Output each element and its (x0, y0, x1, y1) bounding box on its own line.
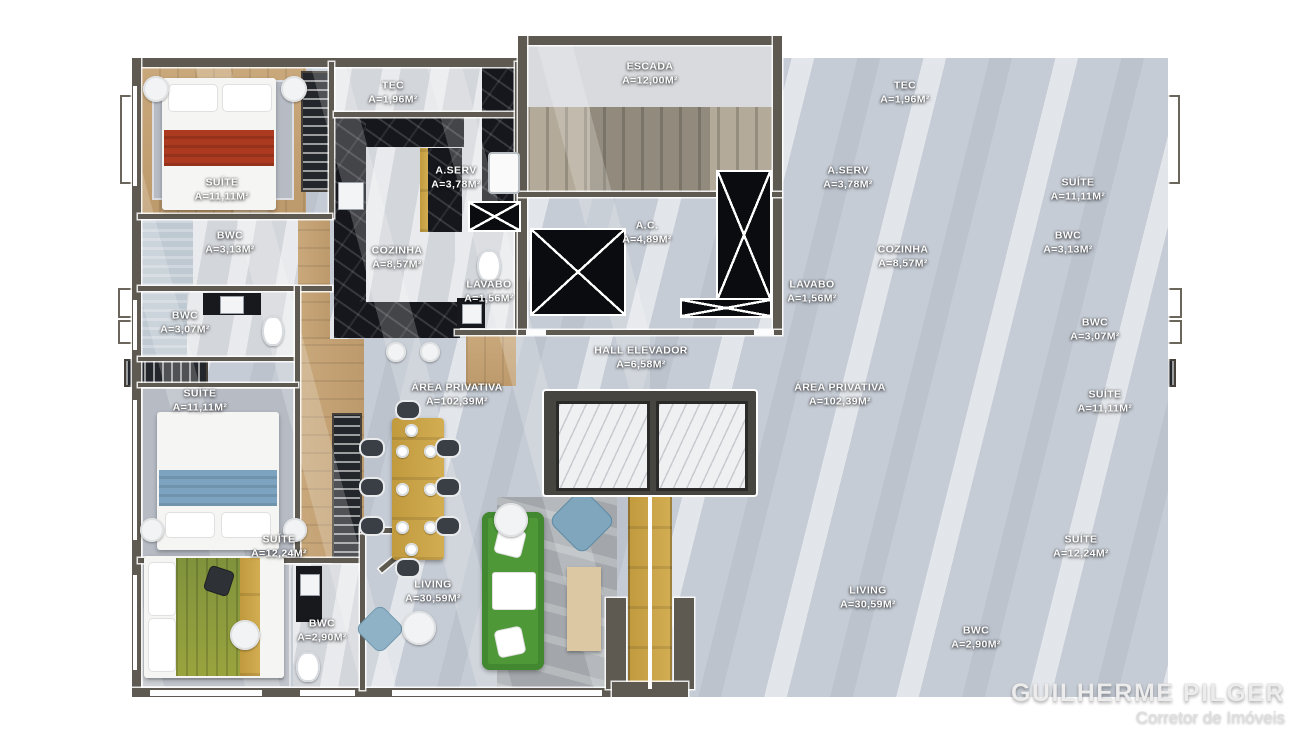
room-label-suite-bottom-right: SUÍTEA=12,24M² (1053, 533, 1109, 560)
room-label-suite-mid-left: SUÍTEA=11,11M² (173, 387, 228, 414)
stairs-shadow (590, 107, 710, 193)
bed-suite-mid (157, 412, 279, 550)
wall (329, 62, 334, 218)
window (133, 300, 137, 350)
floor-plan: SUÍTEA=11,11M² TECA=1,96M² A.SERVA=3,78M… (0, 0, 1300, 731)
window (133, 400, 137, 540)
dining-chair (437, 518, 459, 534)
room-label-cozinha-left: COZINHAA=8,57M² (372, 244, 423, 271)
plate (424, 445, 437, 458)
shaft-x-icon (680, 298, 772, 318)
window (392, 690, 602, 696)
bed-suite-bottom (144, 556, 284, 678)
wall (334, 112, 520, 117)
hall-corridor-wood (298, 215, 330, 339)
room-label-aserv-left: A.SERVA=3,78M² (431, 164, 481, 191)
elevator-right-cab (656, 401, 748, 491)
wardrobe (332, 413, 362, 564)
room-label-bwc-mid-left: BWCA=3,07M² (160, 309, 210, 336)
room-label-suite-bottom-left: SUÍTEA=12,24M² (251, 533, 307, 560)
dining-chair (437, 479, 459, 495)
window (133, 86, 137, 186)
room-label-bwc-bottom-right: BWCA=2,90M² (951, 624, 1001, 651)
room-label-cozinha-right: COZINHAA=8,57M² (878, 243, 929, 270)
door-opening (526, 330, 546, 335)
side-table (494, 503, 528, 537)
dining-chair (361, 518, 383, 534)
room-label-hall-elevador: HALL ELEVADORA=6,58M² (594, 344, 687, 371)
shaft-x-icon (716, 170, 772, 300)
watermark: GUILHERME PILGER Corretor de Imóveis (1011, 679, 1285, 728)
nightstand (140, 518, 164, 542)
watermark-name: GUILHERME PILGER (1011, 679, 1285, 708)
plate (424, 521, 437, 534)
room-label-ac: A.C.A=4,89M² (622, 219, 672, 246)
shaft-x-icon (468, 201, 521, 232)
window (300, 690, 355, 696)
elevator-left-cab (556, 401, 650, 491)
wall (138, 357, 298, 361)
room-label-bwc-suite-left: BWCA=3,13M² (205, 229, 255, 256)
wall (455, 330, 520, 335)
pouf (230, 620, 260, 650)
bwc-bottom-toilet (296, 652, 320, 682)
lavabo-toilet (477, 250, 501, 282)
kitchen-island-side (420, 148, 428, 232)
room-label-lavabo-right: LAVABOA=1,56M² (787, 278, 837, 305)
room-label-lavabo-left: LAVABOA=1,56M² (464, 278, 514, 305)
room-label-suite-top-left: SUÍTEA=11,11M² (195, 176, 250, 203)
wall (773, 36, 782, 332)
bwc-mid-toilet (262, 316, 284, 346)
bwc-bottom-sink (300, 574, 320, 596)
wall (606, 598, 626, 689)
room-label-suite-mid-right: SUÍTEA=11,11M² (1078, 388, 1133, 415)
bwc-mid-sink (220, 296, 244, 314)
door-opening (754, 330, 774, 335)
room-label-escada: ESCADAA=12,00M² (622, 60, 678, 87)
window (133, 575, 137, 670)
room-label-bwc-bottom-left: BWCA=2,90M² (297, 617, 347, 644)
kitchen-counter-bottom (334, 302, 460, 338)
dining-chair (361, 440, 383, 456)
room-label-tec-right: TECA=1,96M² (880, 79, 930, 106)
washing-machine (488, 152, 520, 194)
room-label-area-privativa-left: ÁREA PRIVATIVAA=102,39M² (411, 381, 503, 408)
pouf (402, 611, 436, 645)
plate (405, 543, 418, 556)
plate (396, 445, 409, 458)
kitchen-stool (386, 342, 406, 362)
divider-gap (648, 497, 652, 689)
plate (396, 521, 409, 534)
room-label-aserv-right: A.SERVA=3,78M² (823, 164, 873, 191)
lavabo-sink (462, 304, 482, 324)
room-label-bwc-mid-right: BWCA=3,07M² (1070, 316, 1120, 343)
nightstand (143, 76, 169, 102)
shaft-x-icon (530, 228, 626, 316)
window (150, 690, 262, 696)
kitchen-stool (420, 342, 440, 362)
wall (518, 330, 782, 335)
entry-wood (466, 334, 516, 386)
watermark-role: Corretor de Imóveis (1011, 708, 1285, 728)
plate (405, 424, 418, 437)
room-label-tec-left: TECA=1,96M² (368, 79, 418, 106)
dining-chair (397, 560, 419, 576)
dining-chair (361, 479, 383, 495)
dining-chair (437, 440, 459, 456)
wall (518, 36, 782, 45)
bwc-suite-shower (141, 219, 193, 286)
wall (138, 286, 332, 291)
room-label-bwc-suite-right: BWCA=3,13M² (1043, 229, 1093, 256)
nightstand (281, 76, 307, 102)
plate (396, 483, 409, 496)
room-label-suite-top-right: SUÍTEA=11,11M² (1051, 176, 1106, 203)
wall (132, 58, 520, 67)
room-label-living-left: LIVINGA=30,59M² (405, 578, 461, 605)
wall (138, 214, 332, 219)
wall (674, 598, 694, 689)
kitchen-sink (338, 182, 364, 210)
room-label-area-privativa-right: ÁREA PRIVATIVAA=102,39M² (794, 381, 886, 408)
coffee-table (567, 567, 601, 651)
room-label-living-right: LIVINGA=30,59M² (840, 584, 896, 611)
wall (360, 528, 365, 690)
plate (424, 483, 437, 496)
